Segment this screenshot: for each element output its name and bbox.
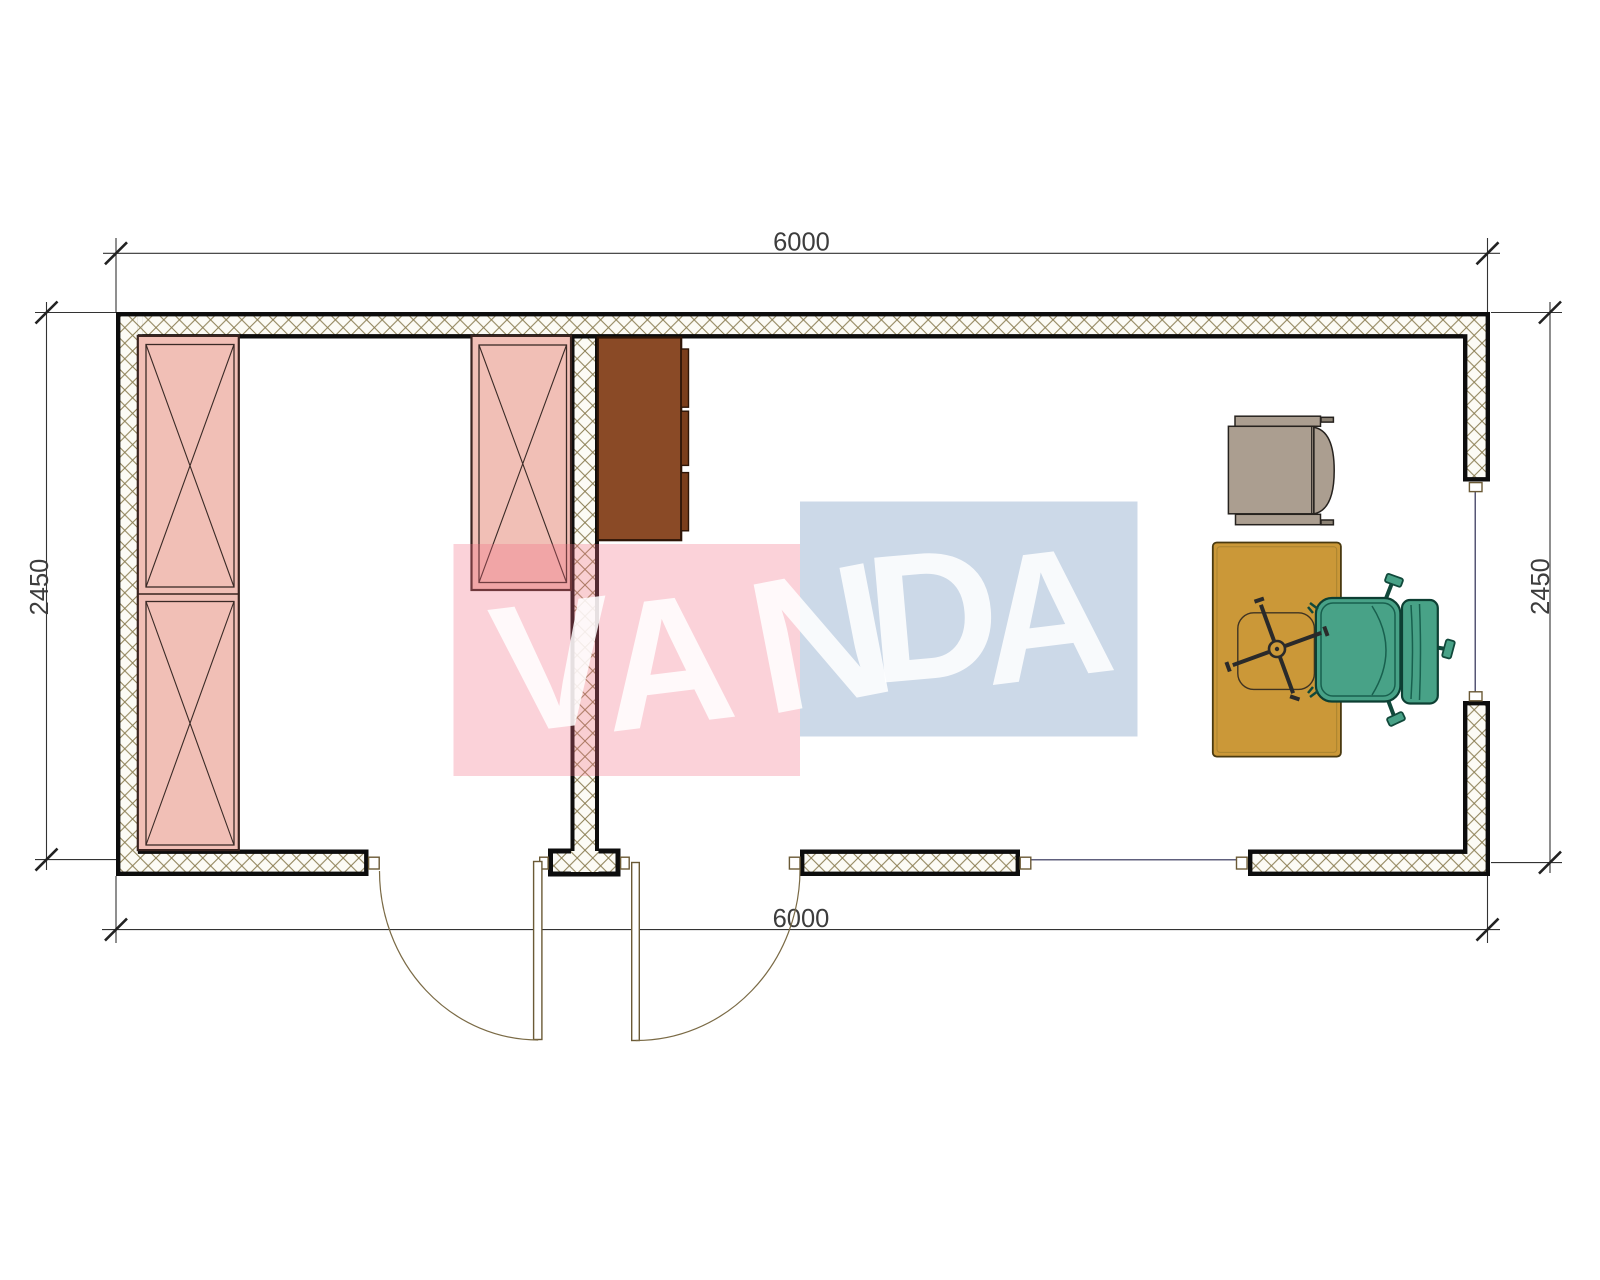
svg-text:6000: 6000	[773, 229, 830, 257]
svg-text:A: A	[968, 506, 1123, 724]
svg-text:2450: 2450	[26, 559, 54, 616]
svg-text:2450: 2450	[1527, 558, 1555, 615]
svg-text:6000: 6000	[773, 905, 830, 933]
svg-text:A: A	[589, 552, 744, 770]
